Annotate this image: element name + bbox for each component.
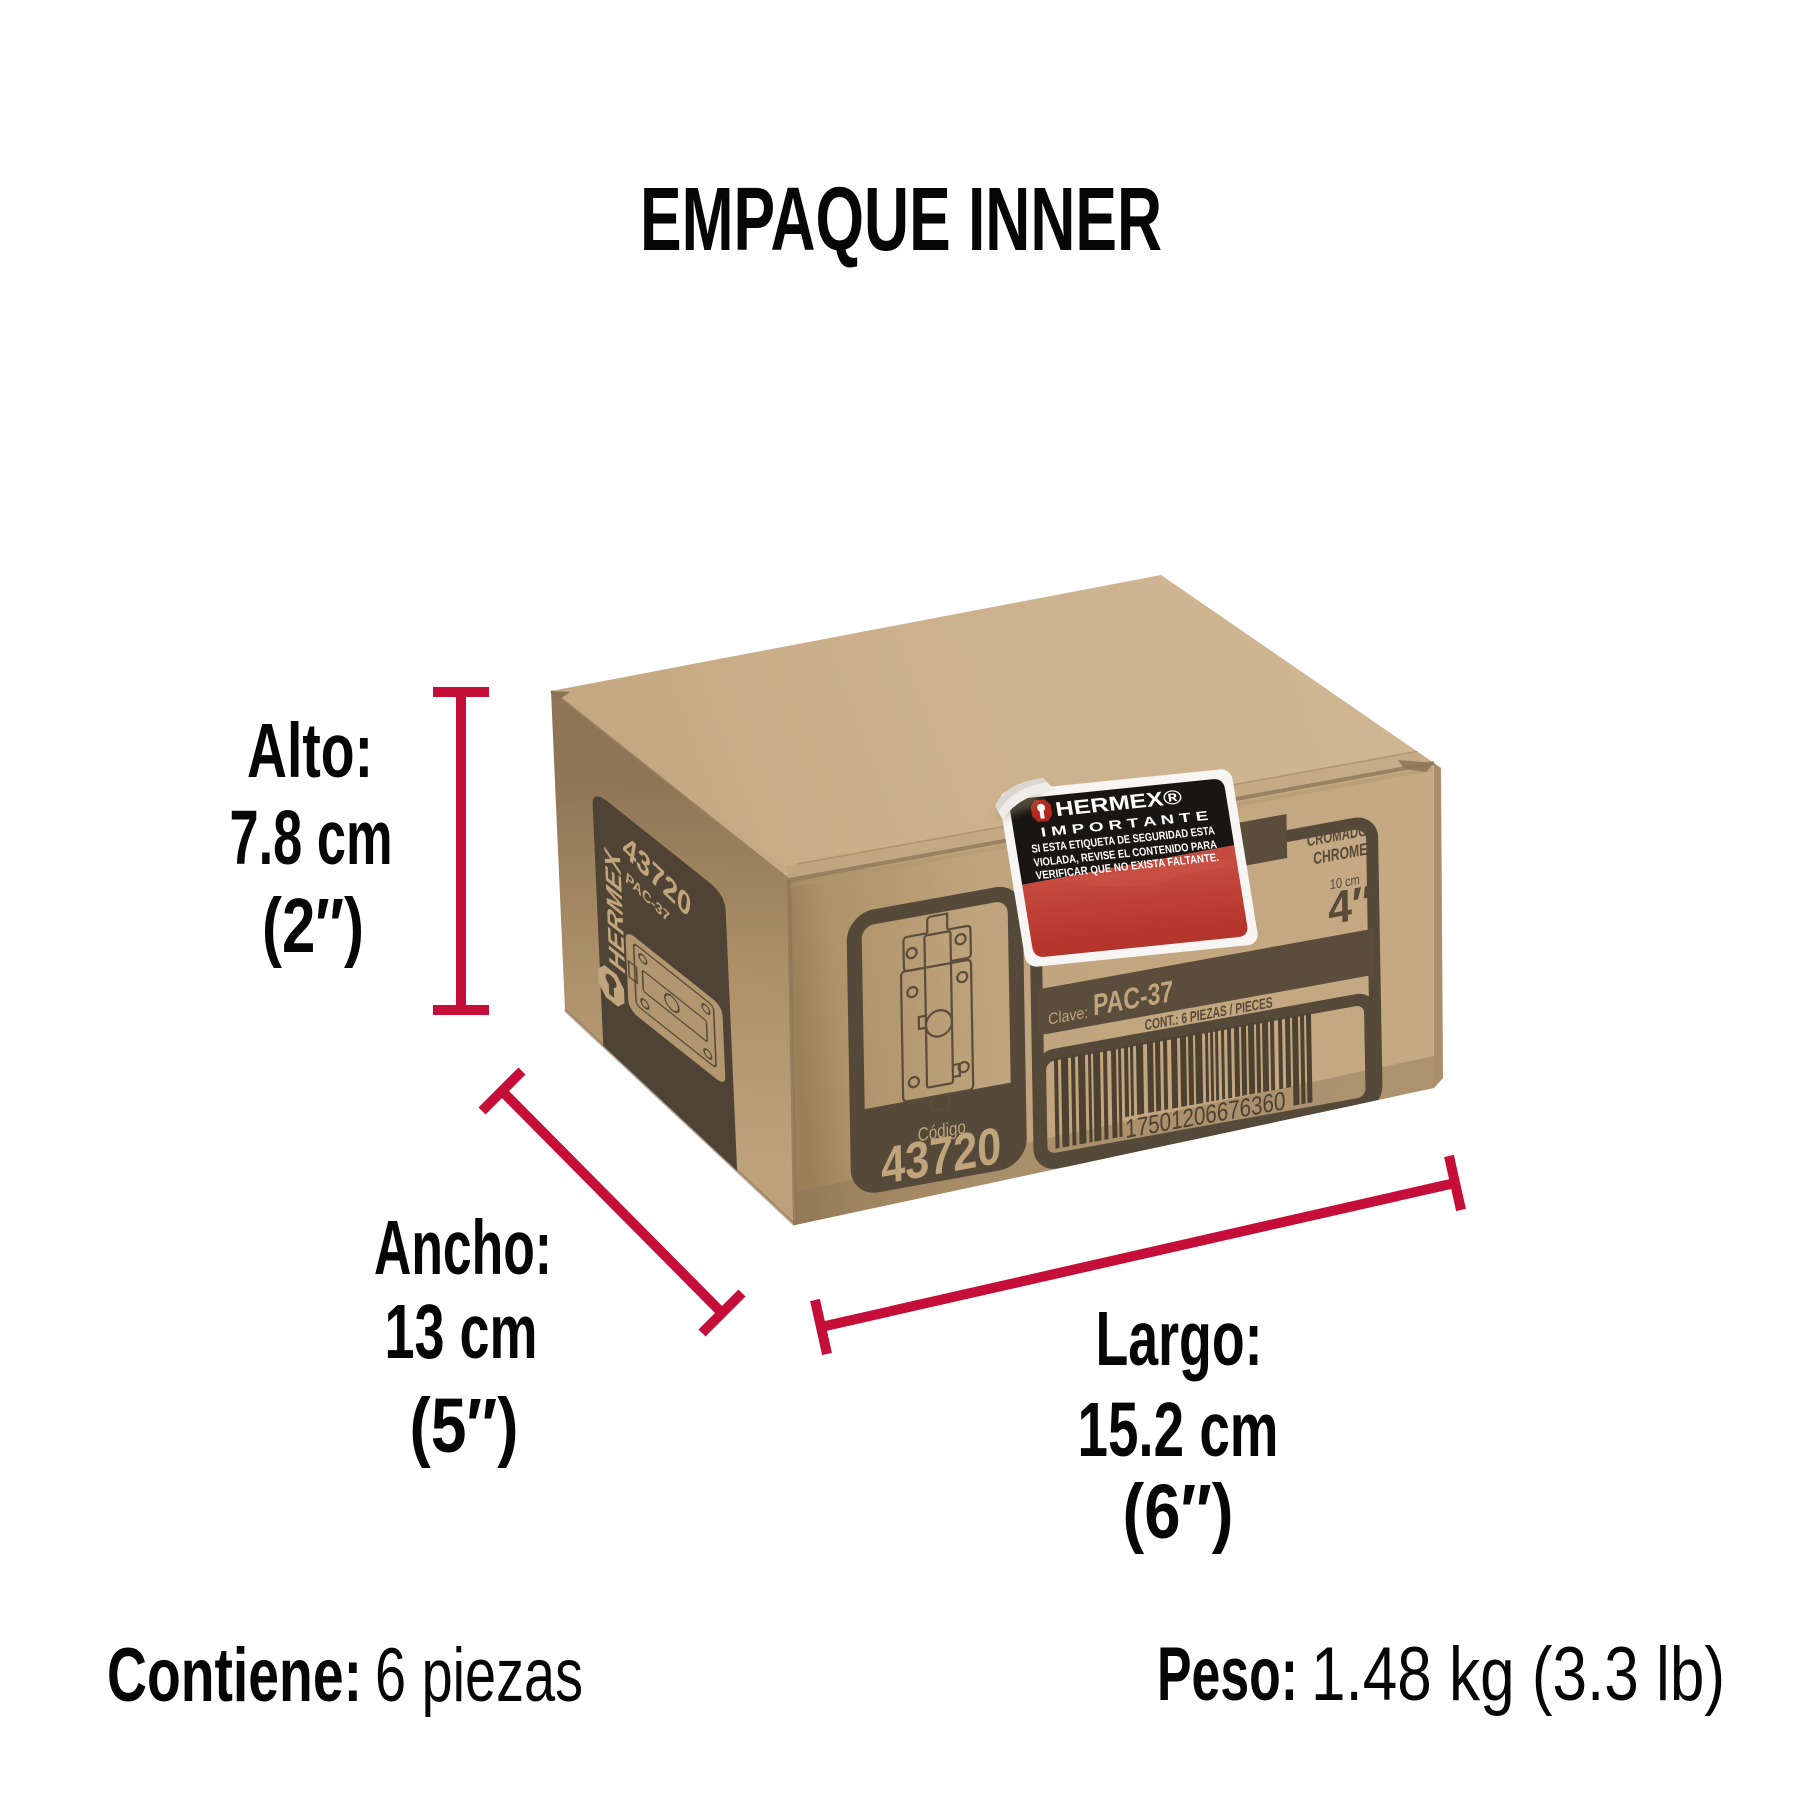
svg-text:Peso:1.48 kg (3.3 lb): Peso:1.48 kg (3.3 lb) — [1157, 1632, 1725, 1717]
svg-text:(6″): (6″) — [1123, 1469, 1234, 1555]
svg-text:(2″): (2″) — [262, 883, 364, 969]
svg-text:Contiene:6 piezas: Contiene:6 piezas — [107, 1633, 583, 1718]
svg-text:(5″): (5″) — [410, 1383, 519, 1469]
svg-text:Alto:: Alto: — [247, 708, 373, 794]
svg-text:13 cm: 13 cm — [385, 1289, 538, 1375]
svg-text:7.8 cm: 7.8 cm — [230, 795, 393, 881]
svg-text:4″: 4″ — [1328, 875, 1373, 935]
svg-text:15.2 cm: 15.2 cm — [1078, 1387, 1279, 1473]
svg-text:EMPAQUE INNER: EMPAQUE INNER — [640, 170, 1162, 270]
svg-text:Largo:: Largo: — [1096, 1296, 1263, 1382]
svg-text:Ancho:: Ancho: — [374, 1205, 552, 1291]
